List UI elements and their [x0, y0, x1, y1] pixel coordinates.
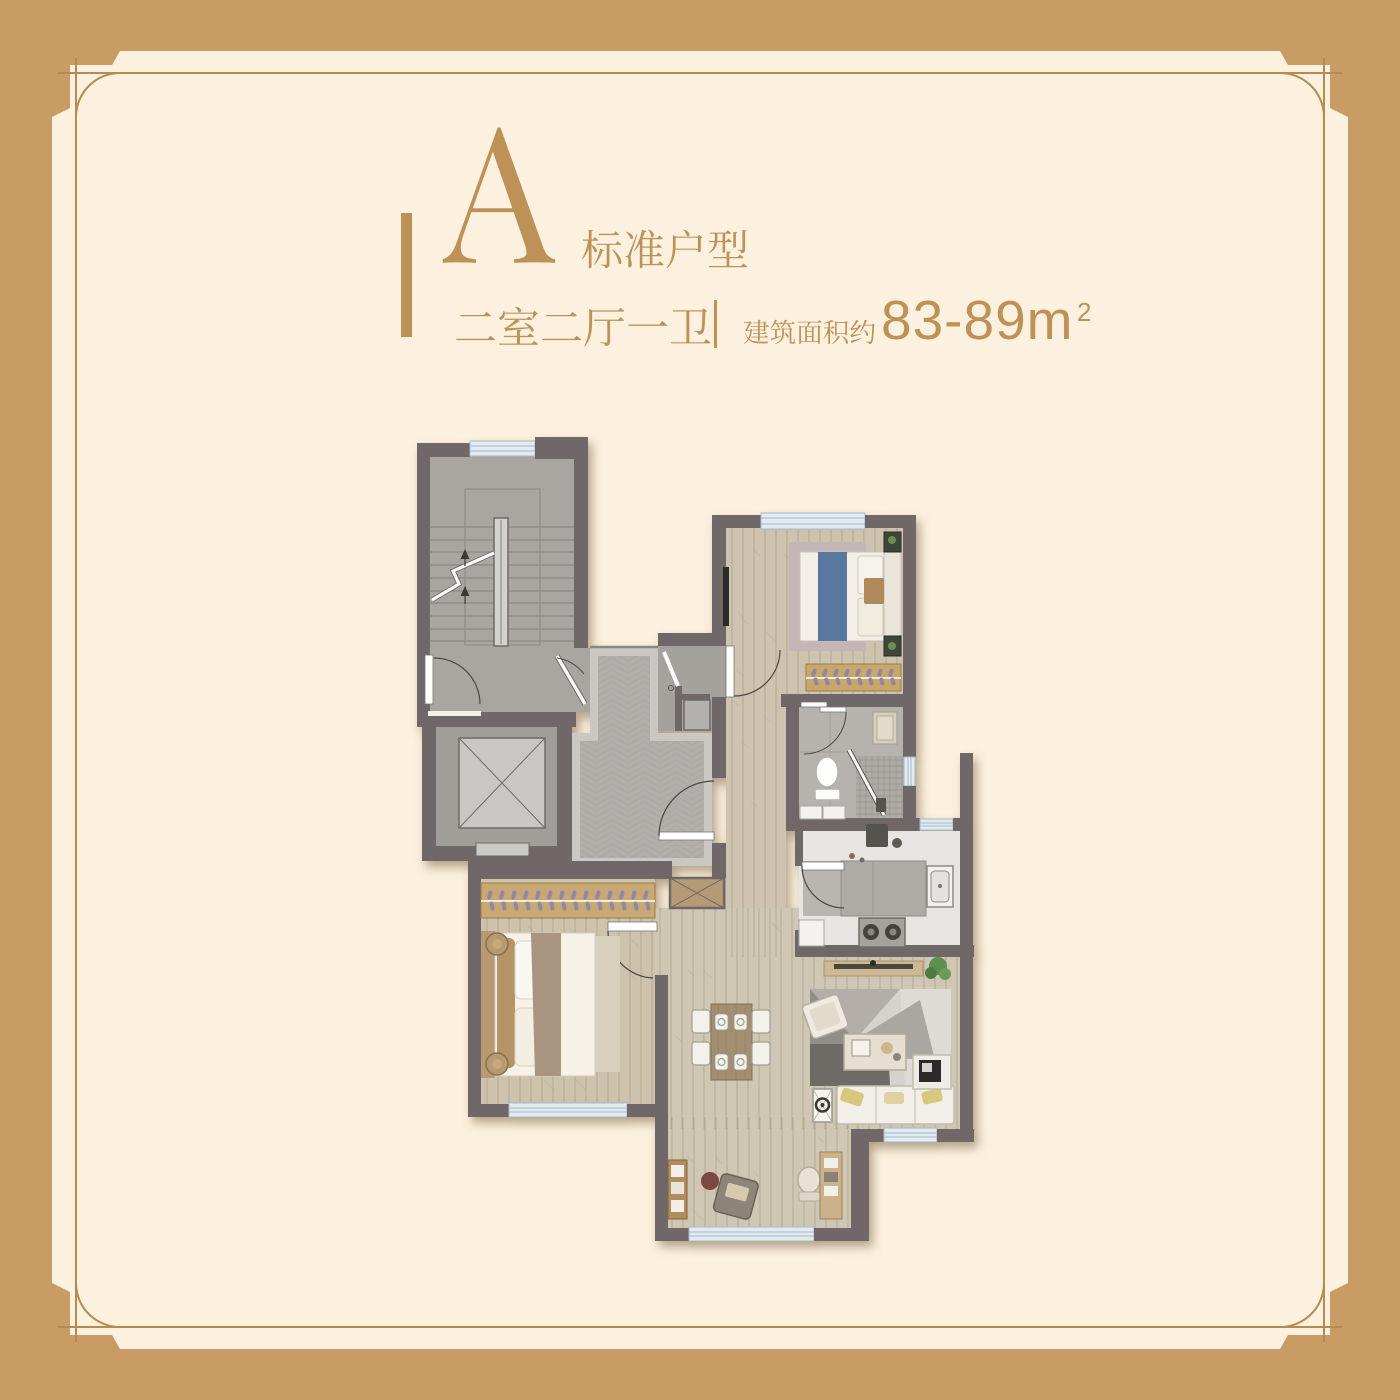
svg-text:83-89m: 83-89m: [881, 289, 1073, 351]
svg-text:2: 2: [1077, 297, 1091, 327]
